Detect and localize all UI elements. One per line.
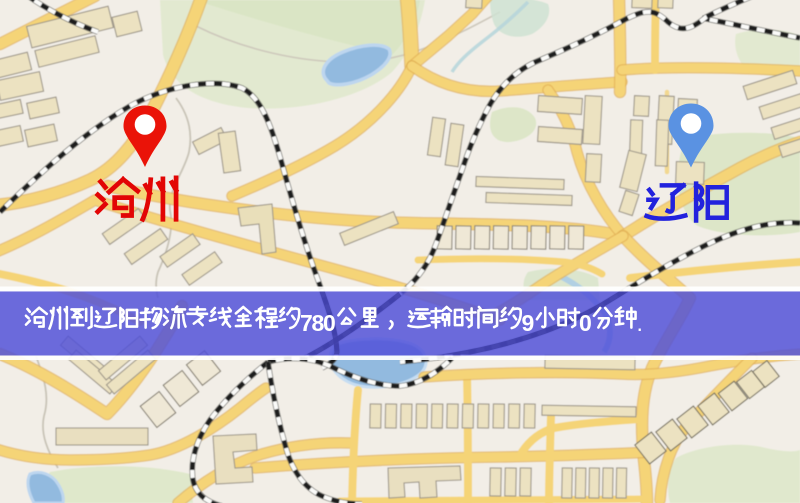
svg-text:0: 0: [579, 310, 592, 336]
svg-text:.: .: [637, 310, 643, 336]
svg-text:9: 9: [522, 310, 535, 336]
svg-text:0: 0: [323, 310, 336, 336]
